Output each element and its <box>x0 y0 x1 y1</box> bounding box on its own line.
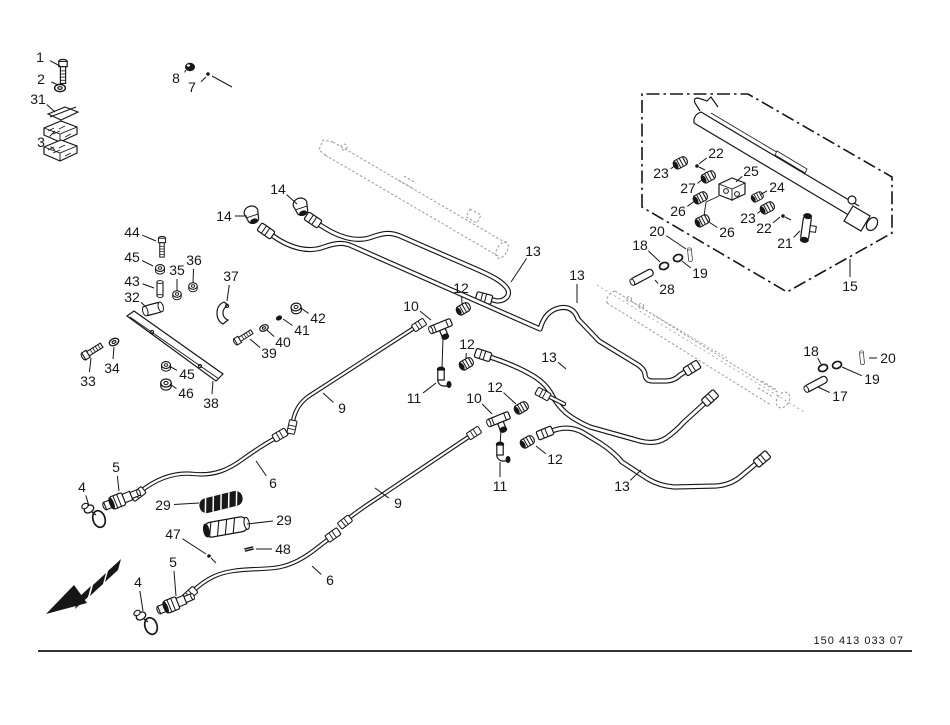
leader-line <box>682 261 691 268</box>
pipe-13-mid <box>474 348 719 442</box>
leader-line <box>117 476 119 491</box>
screw-47 <box>207 554 216 563</box>
leader-line <box>250 339 260 348</box>
line-9a <box>287 318 427 434</box>
leader-line <box>511 258 527 282</box>
leader-line <box>174 571 176 596</box>
leader-line <box>142 284 154 288</box>
screw-pair-7-8 <box>185 63 232 87</box>
pipe-13-hairpin <box>304 212 509 305</box>
leader-line <box>648 251 660 262</box>
grip-29b <box>202 516 251 539</box>
inset-valve-block <box>704 178 745 216</box>
screw-48 <box>244 546 254 552</box>
pipe-13-bottom <box>536 426 771 487</box>
diagram-artwork <box>0 0 950 725</box>
ghost-cylinder-right <box>597 285 806 413</box>
leader-line <box>842 367 862 376</box>
leader-line <box>504 393 516 404</box>
pipe-clamp-14a <box>243 204 262 226</box>
leader-line <box>142 261 153 266</box>
leader-line <box>89 358 91 372</box>
leader-line <box>47 104 55 112</box>
leader-line <box>709 222 717 228</box>
leader-line <box>267 330 274 337</box>
leader-line <box>212 381 213 394</box>
line-9b <box>337 426 481 529</box>
leader-line <box>227 285 229 301</box>
leader-line <box>818 358 821 364</box>
leader-line <box>818 387 830 393</box>
leader-line <box>666 236 686 249</box>
pins-and-orings-left <box>629 248 693 286</box>
hose-6a-assembly <box>81 428 288 529</box>
leader-line <box>482 404 492 414</box>
leader-line <box>113 347 114 359</box>
bolt-stack <box>44 59 78 161</box>
leader-line <box>794 231 800 237</box>
leader-line <box>773 217 780 223</box>
pins-and-orings-right <box>803 351 865 393</box>
leader-line <box>312 566 321 574</box>
leader-line <box>185 70 186 72</box>
leader-line <box>256 461 266 476</box>
fitting-cluster-2 <box>486 400 536 463</box>
bolt-row-39-42 <box>232 302 302 345</box>
bracket-37 <box>217 302 229 324</box>
leader-line <box>142 235 156 241</box>
detail-inset-border <box>642 94 892 292</box>
leader-line <box>201 77 206 82</box>
clamp-hardware-column <box>142 236 198 316</box>
leader-line <box>301 308 309 313</box>
grip-29a <box>198 489 244 514</box>
hose-6b-assembly <box>133 528 341 636</box>
leader-line <box>655 280 658 284</box>
leader-line <box>323 393 333 402</box>
drawing-number: 150 413 033 07 <box>814 635 904 647</box>
leader-line <box>699 158 707 164</box>
leader-line <box>193 269 194 283</box>
fitting-cluster-1 <box>428 301 475 388</box>
leader-line <box>51 82 58 85</box>
direction-arrow <box>46 559 121 614</box>
t-fitting-21 <box>799 213 818 245</box>
leader-line <box>558 362 566 369</box>
leader-line <box>247 521 273 524</box>
leader-line <box>182 539 206 554</box>
leader-line <box>423 383 436 393</box>
parts-diagram-page: 1231387141444454332353637424140393334454… <box>0 0 950 725</box>
leader-line <box>536 446 546 454</box>
leader-line <box>140 591 143 611</box>
leader-line <box>174 503 199 505</box>
leader-line <box>283 319 292 325</box>
mounting-rail-38 <box>80 311 223 390</box>
